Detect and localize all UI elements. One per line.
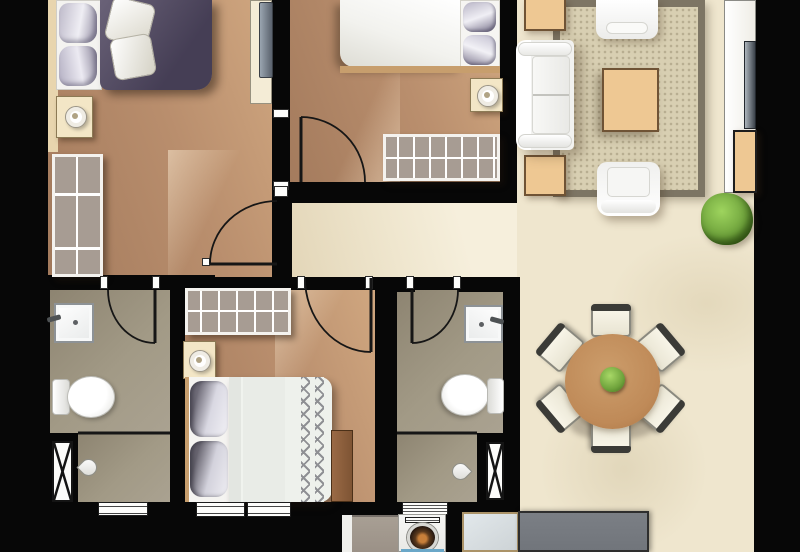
utility-taupe-slab [352,515,400,552]
bed2-frame-bottom [340,66,500,73]
bedroom2-lamp [477,85,499,107]
living-tan-cabinet [733,130,757,193]
bathroom1-door-jamb-left [100,276,108,289]
armchair-bottom-seat [607,167,650,197]
bathroom1-window [98,502,148,516]
bedroom1-tv [259,2,273,78]
bathroom1-vent-shaft [52,441,73,502]
armchair-bottom-back [601,200,656,213]
bedroom3-window-right [247,502,291,517]
bed3-zigzag-band-1 [301,377,310,502]
bedroom2-bed [340,0,500,73]
bed2-duvet-white [340,0,462,67]
armchair-top-seat-edge [606,22,648,34]
sofa-armrest-top [518,42,572,56]
bedroom1-door-jamb-hinge [274,186,288,197]
living-armchair-top [596,0,658,39]
living-sofa [516,40,574,150]
wall-bathroom2-right [503,277,520,512]
bathroom2-vent-shaft [486,442,504,500]
bed1-throw-pillow-2 [109,33,158,82]
living-side-table-bottom [524,155,566,196]
bathroom2-toilet [441,374,505,416]
hallway-floor [292,203,517,277]
living-tv [744,41,756,129]
bathroom1-toilet [52,376,116,418]
bed3-pillow-pair-top [190,381,228,437]
dining-chair-north [591,304,631,337]
living-potted-plant-icon [701,193,753,245]
utility-white-strip [342,515,352,552]
bedroom3-bed [185,377,332,502]
living-armchair-bottom [597,162,660,216]
bathroom2-sink-drain [479,322,484,327]
kitchen-dark-counter [518,511,649,552]
dining-center-plant-icon [600,367,625,392]
bathroom2-door-jamb-left [406,276,414,289]
wall-bedroom3-right [375,290,397,502]
bedroom2-wardrobe [383,134,500,181]
wall-bedroom2-bottom [292,182,517,203]
bedroom1-lamp [65,106,87,128]
sofa-armrest-bottom [518,134,572,148]
toilet1-bowl [67,376,115,418]
floor-plan [0,0,800,552]
bedroom3-wardrobe [185,288,291,335]
living-side-table-top [524,0,566,31]
kitchen-glass-counter [462,512,519,552]
bedroom1-door-jamb-far [202,258,210,266]
bed3-zigzag-band-2 [315,377,324,502]
bedroom3-lamp [189,350,211,372]
washing-machine [398,514,446,552]
bedroom1-wardrobe [52,154,103,277]
bedroom1-bed [56,0,212,90]
bathroom1-door-jamb-right [152,276,160,289]
wall-bedroom3-left [170,290,185,502]
bathroom1-sink-drain [73,320,78,325]
bedroom3-window-left [196,502,245,517]
bed1-pillow-pair-top [59,3,97,43]
sofa-cushion-divider [533,94,569,96]
washer-drum-door [407,523,438,552]
bed2-pillow-pair-top [463,2,496,32]
bedroom3-foot-bench [331,430,353,502]
bed2-pillow-pair-bottom [463,35,496,65]
bed1-pillow-pair-bottom [59,46,97,86]
bedroom3-door-jamb-left [297,276,305,289]
bedroom1-light-sheen [168,150,272,277]
bathroom2-door-jamb-right [453,276,461,289]
bedroom2-door-jamb-top [273,109,289,118]
bed3-pillow-pair-bottom [190,441,228,497]
toilet2-bowl [441,374,489,416]
wall-bedrooms-divider-upper [272,0,290,117]
toilet2-tank [487,378,504,414]
bedroom3-door-jamb-right [365,276,373,289]
living-coffee-table [602,68,659,132]
